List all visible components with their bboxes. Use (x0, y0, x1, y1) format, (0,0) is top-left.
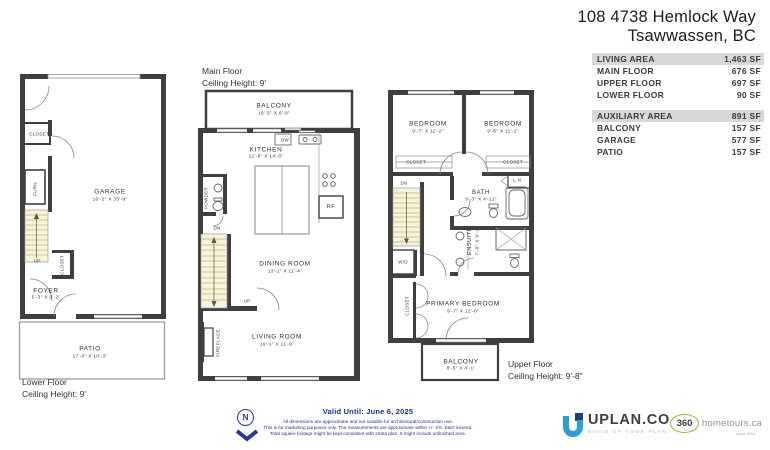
bedroom2-room-dims: 9'-6" X 11'-2" (487, 130, 518, 135)
bedroom2-room-label: BEDROOM (484, 121, 522, 128)
city-line: Tsawwassen, BC (577, 27, 756, 46)
north-arrow-icon (234, 429, 260, 442)
kitchen-room-label: KITCHEN (250, 147, 283, 154)
table-row: PATIO 157 SF (592, 146, 764, 158)
caption-line: Ceiling Height: 9' (22, 389, 86, 401)
powder-room-label: POWDER (204, 187, 209, 209)
hometours-360-badge: 360 (670, 414, 699, 433)
table-row: BALCONY 157 SF (592, 122, 764, 134)
uplan-tagline: BUILD UP YOUR PLAN (588, 429, 670, 434)
area-label: LIVING AREA (592, 53, 700, 65)
north-indicator: N (237, 409, 254, 426)
disclaimer-text: All dimensions are approximate and not s… (263, 419, 472, 436)
closet-label: CLOSET (60, 255, 65, 275)
garage-room-label: GARAGE (94, 189, 125, 196)
closet-label: CLOSET (503, 160, 523, 165)
caption-line: Lower Floor (22, 377, 86, 389)
area-label: BALCONY (592, 122, 711, 134)
foyer-room-dims: 5'-3" X 9'-2" (32, 296, 61, 301)
primary-bedroom-label: PRIMARY BEDROOM (426, 301, 500, 308)
north-label: N (243, 413, 249, 422)
upper-balcony-dims: 8'-5" X 4'-1" (447, 367, 476, 372)
uplan-logo: UPLAN.CO BUILD UP YOUR PLAN (562, 412, 670, 438)
patio-room-dims: 17'-0" X 10'-3" (73, 355, 108, 360)
table-row: GARAGE 577 SF (592, 134, 764, 146)
lower-stairs (25, 210, 48, 262)
area-summary: LIVING AREA 1,463 SF MAIN FLOOR 676 SF U… (592, 53, 764, 167)
closet-label: CLOSET (29, 132, 49, 137)
dishwasher-label: DW (281, 138, 289, 143)
uplan-logo-text: UPLAN.CO BUILD UP YOUR PLAN (588, 412, 670, 434)
lower-garage-door (48, 75, 140, 79)
balcony-outline (206, 91, 352, 129)
area-value: 676 SF (700, 65, 764, 77)
table-header-row: AUXILIARY AREA 891 SF (592, 110, 764, 122)
area-label: LOWER FLOOR (592, 89, 700, 101)
dining-room-label: DINING ROOM (259, 261, 310, 268)
hometours-number: 360 (677, 418, 693, 429)
table-row: UPPER FLOOR 697 SF (592, 77, 764, 89)
living-area-table: LIVING AREA 1,463 SF MAIN FLOOR 676 SF U… (592, 53, 764, 101)
lower-floor-drawing (18, 70, 168, 382)
area-value: 697 SF (700, 77, 764, 89)
balcony-room-dims: 16'-5" X 6'-8" (258, 112, 290, 117)
ensuite-room-label: ENSUITE (467, 227, 473, 255)
disclaimer-line: This is for marketing purposes only. The… (263, 425, 472, 431)
kitchen-room-dims: 12'-8" X 14'-8" (249, 155, 284, 160)
table-row: MAIN FLOOR 676 SF (592, 65, 764, 77)
living-room-dims: 16'-1" X 11'-9" (260, 343, 294, 348)
fireplace-box (204, 328, 213, 356)
main-stairs (201, 234, 227, 308)
upper-stairs (393, 188, 420, 246)
hometours-since: since 2004 (736, 431, 755, 436)
area-value: 90 SF (700, 89, 764, 101)
fireplace-label: FIREPLACE (216, 329, 221, 357)
bedroom1-room-label: BEDROOM (409, 121, 447, 128)
stairs-down-label: DN (400, 181, 407, 186)
garage-room-dims: 16'-2" X 35'-9" (93, 198, 128, 203)
floor-plan-sheet: 108 4738 Hemlock Way Tsawwassen, BC LIVI… (0, 0, 770, 450)
caption-line: Upper Floor (508, 359, 583, 371)
hometours-name: hometours.ca (702, 418, 762, 429)
area-value: 1,463 SF (700, 53, 764, 65)
area-value: 577 SF (711, 134, 764, 146)
area-label: PATIO (592, 146, 711, 158)
furnace-label: FURN (33, 182, 38, 196)
balcony-room-label: BALCONY (256, 103, 291, 110)
uplan-name: UPLAN.CO (588, 412, 670, 428)
linen-label: L.N. (513, 178, 522, 183)
lower-floor-caption: Lower Floor Ceiling Height: 9' (22, 377, 86, 400)
stairs-down-label: DN (213, 226, 220, 231)
ensuite-room-dims: 7'-9" X 9'-2" (476, 227, 481, 256)
table-row: LOWER FLOOR 90 SF (592, 89, 764, 101)
disclaimer-line: All dimensions are approximate and not s… (263, 419, 472, 425)
closet-label: CLOSET (406, 160, 426, 165)
main-floor-caption: Main Floor Ceiling Height: 9' (202, 66, 266, 89)
bedroom1-room-dims: 9'-7" X 11'-2" (412, 130, 443, 135)
bath-room-dims: 9'-3" X 4'-11" (465, 198, 496, 203)
upper-floor-caption: Upper Floor Ceiling Height: 9'-8" (508, 359, 583, 382)
disclaimer-line: Total square footage might be kept consi… (263, 431, 472, 437)
area-label: AUXILIARY AREA (592, 110, 711, 122)
dining-room-dims: 13'-1" X 11'-4" (268, 270, 302, 275)
valid-until-text: Valid Until: June 6, 2025 (323, 407, 413, 416)
lower-window (94, 315, 142, 318)
table-header-row: LIVING AREA 1,463 SF (592, 53, 764, 65)
lower-floor-plan (18, 70, 168, 382)
auxiliary-area-table: AUXILIARY AREA 891 SF BALCONY 157 SF GAR… (592, 110, 764, 158)
bath-room-label: BATH (472, 190, 490, 196)
stairs-up-label: UP (34, 259, 41, 264)
washer-dryer-label: W/D (398, 260, 408, 265)
foyer-room-label: FOYER (33, 288, 58, 295)
address-line: 108 4738 Hemlock Way (577, 8, 756, 27)
living-room-label: LIVING ROOM (252, 334, 302, 341)
area-label: MAIN FLOOR (592, 65, 700, 77)
upper-balcony-label: BALCONY (443, 359, 478, 366)
page-title: 108 4738 Hemlock Way Tsawwassen, BC (577, 8, 756, 46)
patio-room-label: PATIO (79, 346, 101, 353)
area-label: UPPER FLOOR (592, 77, 700, 89)
caption-line: Main Floor (202, 66, 266, 78)
stairs-up-label: UP (244, 299, 251, 304)
closet-label: CLOSET (405, 296, 410, 316)
area-value: 891 SF (711, 110, 764, 122)
area-label: GARAGE (592, 134, 711, 146)
primary-bedroom-dims: 9'-7" X 12'-0" (447, 310, 479, 315)
powder-fixtures (213, 184, 223, 211)
area-value: 157 SF (711, 122, 764, 134)
uplan-logo-icon (562, 412, 584, 438)
area-value: 157 SF (711, 146, 764, 158)
caption-line: Ceiling Height: 9'-8" (508, 371, 583, 383)
caption-line: Ceiling Height: 9' (202, 78, 266, 90)
refrigerator-label: RF (327, 204, 336, 210)
